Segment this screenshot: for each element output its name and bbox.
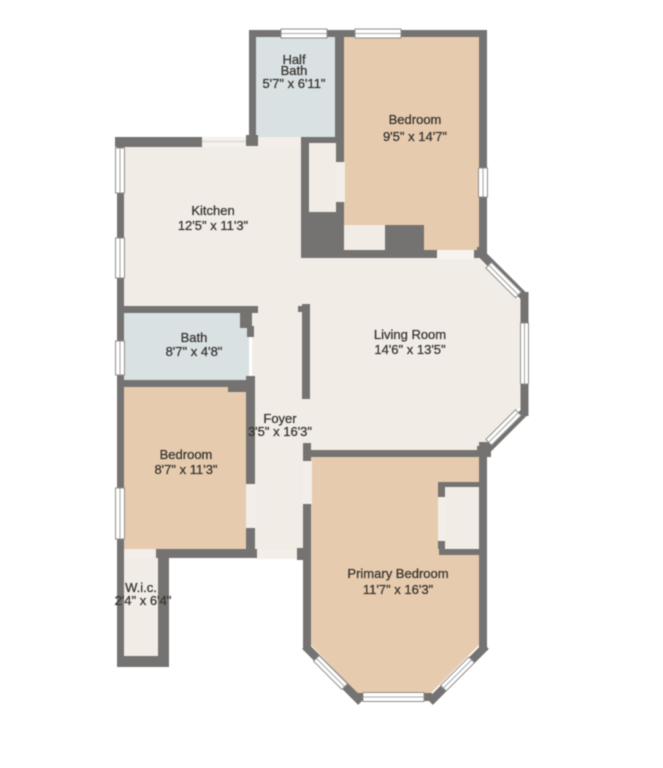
svg-text:8'7" x 11'3": 8'7" x 11'3": [154, 462, 217, 477]
svg-text:12'5" x 11'3": 12'5" x 11'3": [178, 218, 249, 233]
svg-text:9'5" x 14'7": 9'5" x 14'7": [383, 129, 447, 144]
svg-text:8'7" x 4'8": 8'7" x 4'8": [166, 344, 223, 359]
svg-text:3'5" x 16'3": 3'5" x 16'3": [248, 424, 312, 439]
svg-text:Kitchen: Kitchen: [191, 203, 234, 218]
svg-text:Bedroom: Bedroom: [160, 447, 213, 462]
svg-text:Living Room: Living Room: [374, 327, 446, 342]
svg-text:2'4" x 6'4": 2'4" x 6'4": [115, 593, 172, 608]
svg-text:5'7" x 6'11": 5'7" x 6'11": [262, 76, 325, 91]
svg-text:11'7" x 16'3": 11'7" x 16'3": [363, 582, 434, 597]
svg-text:Bedroom: Bedroom: [389, 112, 442, 127]
svg-text:Primary Bedroom: Primary Bedroom: [347, 566, 448, 581]
svg-text:Bath: Bath: [181, 330, 208, 345]
svg-text:14'6" x 13'5": 14'6" x 13'5": [374, 342, 446, 357]
